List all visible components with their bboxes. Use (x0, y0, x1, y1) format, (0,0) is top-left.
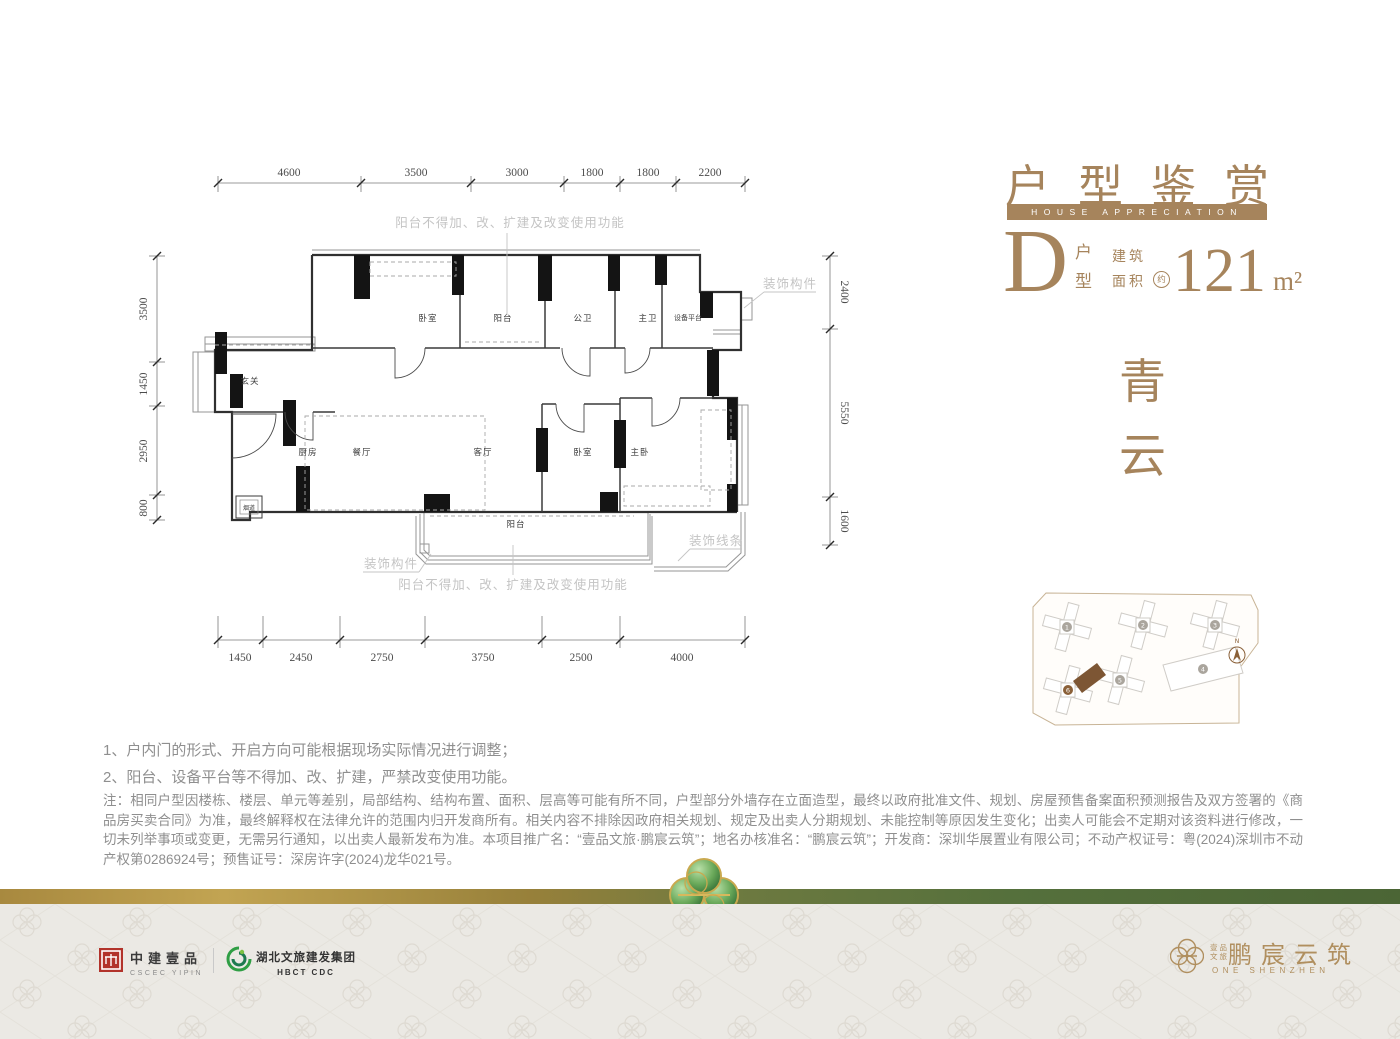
dim-top-5: 1800 (637, 167, 660, 179)
dim-bottom-4: 3750 (472, 652, 495, 664)
room-label-bedroom-mid: 卧室 (573, 447, 592, 458)
area-word-bottom: 面积 (1112, 271, 1146, 291)
deco-component-left-label: 装饰构件 (364, 556, 418, 571)
cscec-name: 中建壹品 (130, 948, 203, 967)
area-unit: m² (1273, 268, 1302, 295)
note-line-1: 1、户内门的形式、开启方向可能根据现场实际情况进行调整； (103, 737, 516, 764)
dim-right-1: 2400 (838, 281, 850, 304)
room-label-equip-platform: 设备平台 (674, 313, 702, 322)
dim-bottom-1: 1450 (229, 652, 252, 664)
plan-light-details (193, 250, 752, 571)
plan-doors (232, 348, 680, 458)
north-label: N (1235, 638, 1240, 645)
deco-component-right-label: 装饰构件 (763, 276, 817, 291)
tagline-char-1: 青 (1119, 360, 1166, 407)
brand-small-1: 壹品 (1210, 943, 1229, 952)
dim-top-2: 3500 (405, 167, 428, 179)
room-label-bedroom-top: 卧室 (418, 313, 437, 324)
building-4-number: 4 (1201, 666, 1205, 674)
dim-bottom-5: 2500 (570, 652, 593, 664)
dim-left-4: 800 (138, 499, 150, 517)
floor-plan: 4600 3500 3000 1800 1800 2200 1450 2450 … (120, 140, 860, 710)
dim-left-3: 2950 (138, 439, 150, 462)
brand-emblem-icon (1170, 938, 1204, 974)
hbct-logo-icon (225, 945, 253, 973)
dim-right-3: 1600 (838, 510, 850, 533)
room-label-living: 客厅 (473, 447, 492, 458)
room-label-balcony-bottom: 阳台 (506, 519, 525, 530)
hbct-logo-text: 湖北文旅建发集团 HBCT CDC (256, 949, 356, 977)
tagline-char-2: 云 (1119, 434, 1166, 481)
brand-small-text: 壹品 文旅 (1210, 943, 1229, 961)
dim-top-3: 3000 (506, 167, 529, 179)
building-1-number: 1 (1065, 624, 1069, 632)
approx-circle: 约 (1153, 271, 1170, 288)
unit-words: 户 型 (1075, 238, 1092, 292)
area-words: 建筑 面积 (1112, 246, 1146, 291)
room-label-balcony-top: 阳台 (493, 313, 512, 324)
building-3-number: 3 (1213, 622, 1217, 630)
plan-columns (215, 255, 737, 512)
cscec-logo-icon (99, 948, 123, 972)
balcony-note-bottom: 阳台不得加、改、扩建及改变使用功能 (398, 577, 628, 592)
dim-top-6: 2200 (699, 167, 722, 179)
cscec-logo-text: 中建壹品 CSCEC YIPIN (130, 948, 203, 977)
note-line-2: 2、阳台、设备平台等不得加、改、扩建，严禁改变使用功能。 (103, 764, 516, 791)
dim-right-2: 5550 (838, 402, 850, 425)
unit-letter: D (1003, 229, 1068, 296)
area-word-top: 建筑 (1112, 246, 1146, 266)
plan-dashed (215, 262, 731, 516)
cscec-en: CSCEC YIPIN (130, 970, 203, 977)
dim-bottom-6: 4000 (671, 652, 694, 664)
unit-word-top: 户 (1075, 238, 1092, 263)
tagline: 青 云 (1119, 360, 1166, 481)
building-2-number: 2 (1141, 622, 1145, 630)
hbct-en: HBCT CDC (256, 968, 356, 977)
dim-bottom-3: 2750 (371, 652, 394, 664)
room-label-foyer: 玄关 (240, 376, 259, 387)
hbct-name: 湖北文旅建发集团 (256, 949, 356, 965)
site-plan: 1 2 3 4 5 6 N (1025, 585, 1270, 735)
room-label-dining: 餐厅 (352, 448, 371, 458)
building-6-number: 6 (1066, 687, 1070, 695)
dim-left-1: 3500 (138, 297, 150, 320)
room-label-bath-public: 公卫 (573, 314, 592, 324)
brand-small-2: 文旅 (1210, 952, 1229, 961)
area-value: 121 (1173, 247, 1266, 295)
brand-en: ONE SHENZHEN (1212, 966, 1330, 975)
notes: 1、户内门的形式、开启方向可能根据现场实际情况进行调整； 2、阳台、设备平台等不… (103, 737, 516, 791)
brand-name: 鹏宸云筑 (1228, 935, 1360, 970)
unit-info: D 户 型 建筑 面积 约 121 m² (1003, 229, 1302, 296)
dim-left-2: 1450 (138, 372, 150, 395)
building-5-number: 5 (1118, 677, 1122, 685)
room-label-flue: 烟道 (243, 504, 255, 512)
deco-line-label: 装饰线条 (689, 533, 743, 548)
balcony-note-top: 阳台不得加、改、扩建及改变使用功能 (395, 215, 625, 230)
room-label-kitchen: 厨房 (298, 447, 317, 458)
unit-word-bottom: 型 (1075, 267, 1092, 292)
dim-top-4: 1800 (581, 167, 604, 179)
dim-bottom-2: 2450 (290, 652, 313, 664)
room-label-bedroom-master: 主卧 (630, 447, 649, 458)
logo-divider (213, 948, 214, 973)
dim-top-1: 4600 (278, 167, 301, 179)
room-label-bath-master: 主卫 (638, 313, 657, 324)
